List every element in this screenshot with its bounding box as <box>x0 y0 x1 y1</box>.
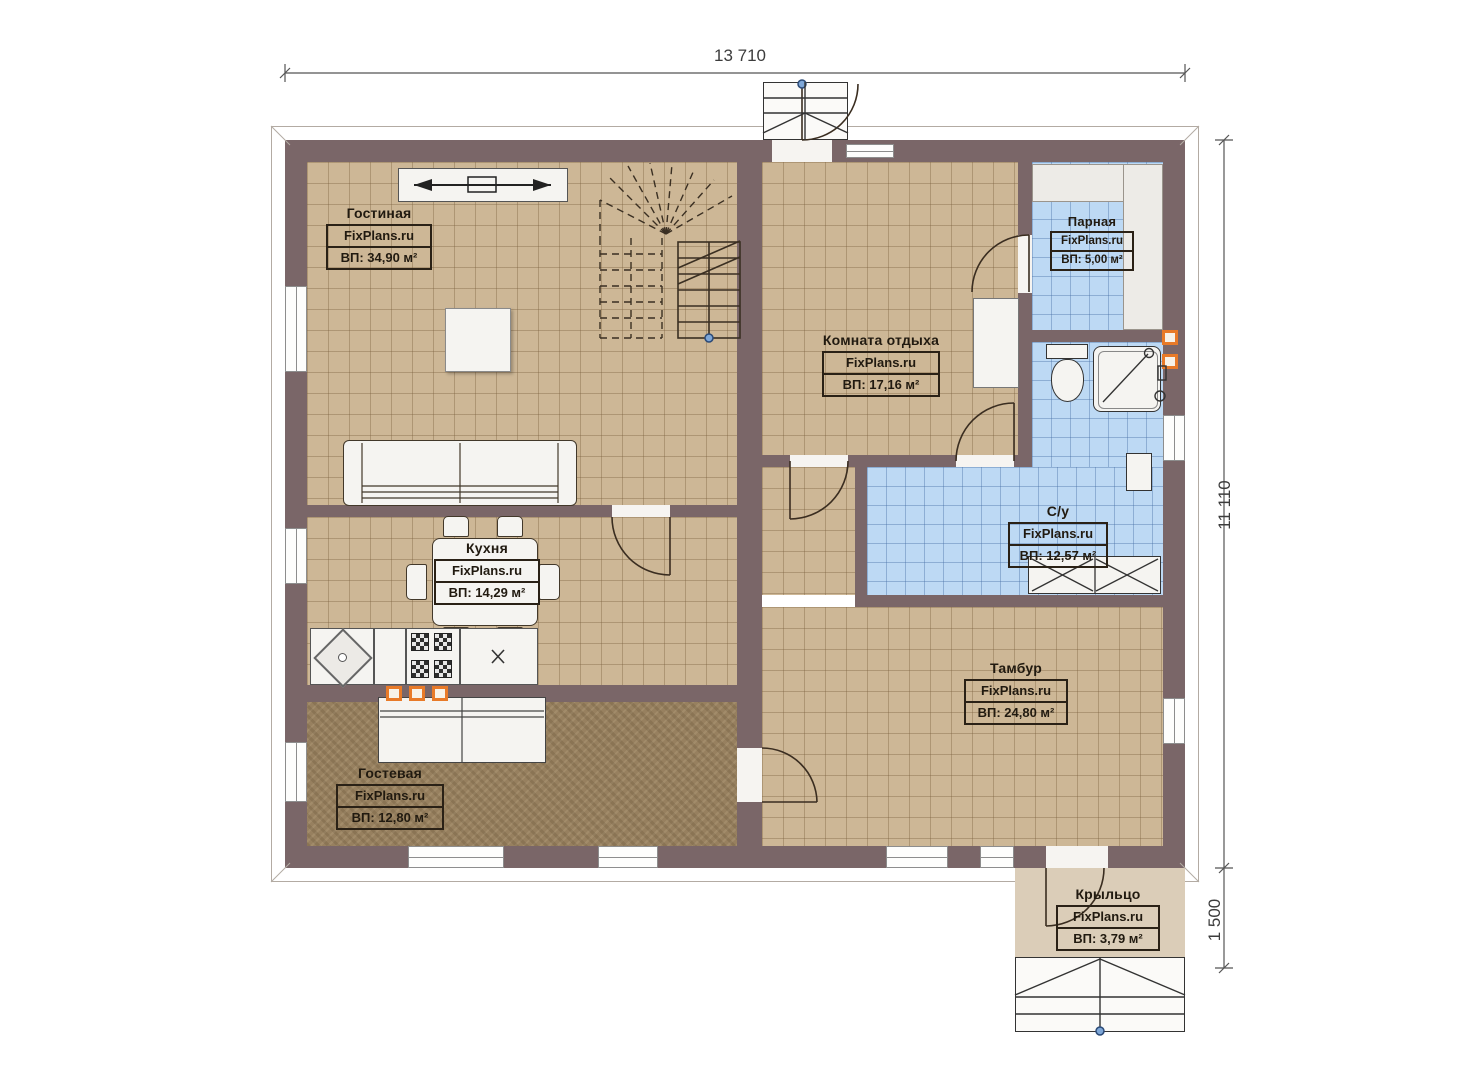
dimension-right-height: 11 110 <box>1215 455 1235 555</box>
floor-plan-canvas: 13 710 11 110 1 500 Гостиная FixPlans.ru… <box>0 0 1473 1080</box>
room-area: ВП: 17,16 м² <box>824 373 938 395</box>
room-info-box: FixPlans.ru ВП: 17,16 м² <box>822 351 940 397</box>
sofa-lines <box>362 443 558 503</box>
entry-step-lines <box>763 82 848 140</box>
room-name: С/у <box>1008 503 1108 520</box>
room-area: ВП: 12,57 м² <box>1010 544 1106 566</box>
brand-text: FixPlans.ru <box>1010 524 1106 544</box>
room-name: Кухня <box>434 540 540 557</box>
room-area: ВП: 34,90 м² <box>328 246 430 268</box>
room-info-box: FixPlans.ru ВП: 5,00 м² <box>1050 231 1134 271</box>
room-label-guest: Гостевая FixPlans.ru ВП: 12,80 м² <box>336 765 444 830</box>
brand-text: FixPlans.ru <box>436 561 538 581</box>
room-area: ВП: 14,29 м² <box>436 581 538 603</box>
counter-x-mark <box>492 650 504 663</box>
brand-text: FixPlans.ru <box>1052 233 1132 250</box>
tv-symbol <box>414 177 551 192</box>
staircase <box>600 163 740 342</box>
room-info-box: FixPlans.ru ВП: 24,80 м² <box>964 679 1068 725</box>
room-area: ВП: 24,80 м² <box>966 701 1066 723</box>
room-label-porch: Крыльцо FixPlans.ru ВП: 3,79 м² <box>1056 886 1160 951</box>
room-name: Тамбур <box>964 660 1068 677</box>
room-name: Гостевая <box>336 765 444 782</box>
room-label-living: Гостиная FixPlans.ru ВП: 34,90 м² <box>326 205 432 270</box>
room-area: ВП: 3,79 м² <box>1058 927 1158 949</box>
room-info-box: FixPlans.ru ВП: 12,80 м² <box>336 784 444 830</box>
stair-pivot-dot <box>705 334 713 342</box>
brand-text: FixPlans.ru <box>1058 907 1158 927</box>
room-name: Парная <box>1050 214 1134 229</box>
room-label-wc: С/у FixPlans.ru ВП: 12,57 м² <box>1008 503 1108 568</box>
room-label-tambour: Тамбур FixPlans.ru ВП: 24,80 м² <box>964 660 1068 725</box>
brand-text: FixPlans.ru <box>328 226 430 246</box>
dimension-porch-depth: 1 500 <box>1205 870 1225 970</box>
room-name: Крыльцо <box>1056 886 1160 903</box>
room-label-rest: Комната отдыха FixPlans.ru ВП: 17,16 м² <box>822 332 940 397</box>
brand-text: FixPlans.ru <box>824 353 938 373</box>
room-info-box: FixPlans.ru ВП: 14,29 м² <box>434 559 540 605</box>
brand-text: FixPlans.ru <box>966 681 1066 701</box>
brand-text: FixPlans.ru <box>338 786 442 806</box>
room-area: ВП: 5,00 м² <box>1052 250 1132 269</box>
bed-lines <box>380 698 544 762</box>
room-label-kitchen: Кухня FixPlans.ru ВП: 14,29 м² <box>434 540 540 605</box>
room-label-steam: Парная FixPlans.ru ВП: 5,00 м² <box>1050 214 1134 271</box>
dimension-top-width: 13 710 <box>680 46 800 66</box>
room-info-box: FixPlans.ru ВП: 12,57 м² <box>1008 522 1108 568</box>
linework-overlay <box>0 0 1473 1080</box>
room-name: Комната отдыха <box>822 332 940 349</box>
room-name: Гостиная <box>326 205 432 222</box>
porch-step-lines <box>1015 957 1185 1035</box>
room-info-box: FixPlans.ru ВП: 3,79 м² <box>1056 905 1160 951</box>
room-area: ВП: 12,80 м² <box>338 806 442 828</box>
shower-lines <box>1103 349 1166 403</box>
room-info-box: FixPlans.ru ВП: 34,90 м² <box>326 224 432 270</box>
